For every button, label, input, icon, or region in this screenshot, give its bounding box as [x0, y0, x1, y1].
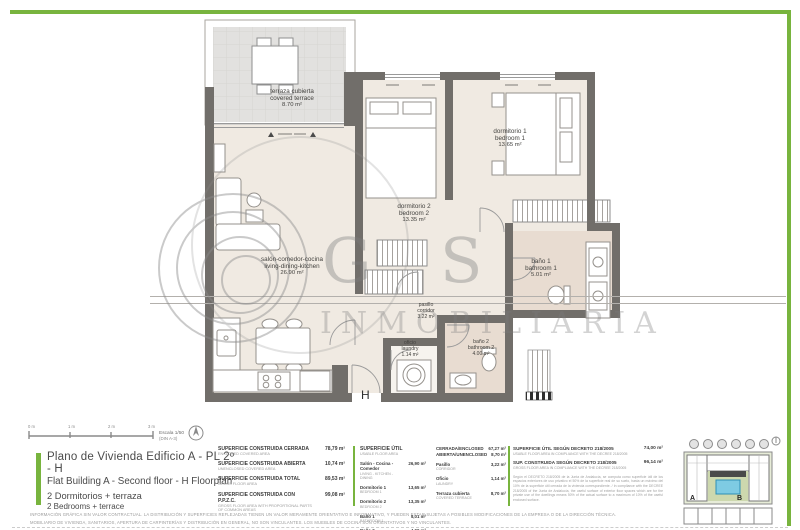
green-border-top [10, 10, 790, 14]
table-row: SUP. CONSTRUIDA SEGÚN DECRETO 218/2005GR… [513, 460, 663, 470]
room-label-bedroom1: dormitorio 1bedroom 113.65 m² [493, 128, 526, 149]
sheet-title-es: Plano de Vivienda Edificio A - PL 2º - H [47, 451, 236, 475]
table-divider [508, 446, 510, 506]
scale-tick-2: 2 m [108, 424, 115, 429]
table-row: PasilloCorridor 3,22 m² [436, 462, 506, 472]
scale-tick-0: 0 m [28, 424, 35, 429]
legal-line-1: INFORMACIÓN GRÁFICA SIN VALOR CONTRACTUA… [30, 511, 685, 519]
stair-hatch [528, 350, 550, 392]
table-row: SUPERFICIE CONSTRUIDA TOTALGROSS FLOOR A… [218, 476, 345, 487]
room-label-terrace: terraza cubiertacovered terrace8.70 m² [270, 88, 314, 109]
unit-letter: H [361, 388, 370, 402]
adjacent-building [684, 508, 772, 524]
table-built-areas: SUPERFICIE CONSTRUIDA CERRADAENCLOSED CO… [218, 446, 345, 518]
floorplan-sheet: G S INMOBILIARIA terraza cubiertacovered… [0, 0, 800, 530]
table-row: SUPERFICIE CONSTRUIDA CERRADAENCLOSED CO… [218, 446, 345, 457]
table-row: Dormitorio 2Bedroom 2 13,35 m² [360, 499, 426, 509]
scale-bar: 0 m 1 m 2 m 3 m Escala 1/50 (DIN A-3) [28, 422, 228, 451]
compass-icon [189, 426, 203, 440]
room-label-corridor: pasillocorridor3.22 m² [417, 303, 435, 321]
sheet-title-en: Flat Building A - Second floor - H Floor… [47, 476, 236, 487]
room-label-bath1: baño 1bathroom 15.01 m² [525, 258, 557, 279]
room-label-living: salón-comedor-cocinaliving-dining-kitche… [261, 256, 323, 277]
sheet-subtitle-en: 2 Bedrooms + terrace [47, 502, 236, 511]
pool [716, 480, 740, 494]
table-row: Terraza cubiertaCovered terrace 8,70 m² [436, 491, 506, 501]
table-row: SUPERFICIE ÚTIL SEGÚN DECRETO 218/2005US… [513, 446, 663, 456]
room-label-bath2: baño 2bathroom 24.00 m² [468, 340, 494, 358]
green-border-right [787, 10, 791, 526]
north-arrow-icon [772, 437, 780, 445]
table-header: SUPERFICIE ÚTILUSABLE FLOOR AREA [360, 446, 426, 456]
table-total-row: CERRADA/ENCLOSED67,27 m² [436, 446, 506, 451]
scale-tick-3: 3 m [148, 424, 155, 429]
washer-icon [397, 360, 431, 391]
table-divider [353, 446, 355, 506]
site-key-plan: A B [680, 434, 784, 530]
sheet-subtitle-es: 2 Dormitorios + terraza [47, 491, 236, 501]
table-row: Salón - Cocina - ComedorLiving - Kitchen… [360, 461, 426, 481]
building-a-label: A [690, 495, 695, 502]
legal-disclaimer: INFORMACIÓN GRÁFICA SIN VALOR CONTRACTUA… [30, 511, 685, 526]
table-decree-areas: SUPERFICIE ÚTIL SEGÚN DECRETO 218/2005US… [513, 446, 663, 502]
tv-unit-icon [214, 144, 225, 172]
table-row: SUPERFICIE CONSTRUIDA ABIERTAUNENCLOSED … [218, 461, 345, 472]
table-row: SUPERFICIE CONSTRUIDA CON P.P.Z.C.GROSS … [218, 492, 345, 513]
room-label-laundry: oficiolaundry1.14 m² [401, 341, 418, 359]
decree-note: Según el DECRETO 218/2005 de la Junta de… [513, 475, 663, 503]
building-b-label: B [737, 495, 742, 502]
title-accent-bar [36, 453, 41, 505]
threshold-stripe [526, 392, 552, 400]
title-block: Plano de Vivienda Edificio A - PL 2º - H… [36, 451, 236, 511]
room-label-bedroom2: dormitorio 2bedroom 213.35 m² [397, 203, 430, 224]
terrace [205, 20, 355, 125]
tree-icons [690, 440, 769, 449]
table-row: OficioLaundry 1,14 m² [436, 476, 506, 486]
table-row: Dormitorio 1Bedroom 1 13,65 m² [360, 485, 426, 495]
bottom-rule [12, 527, 788, 528]
legal-line-2: MOBILIARIO DE VIVIENDA, SANITARIOS, APER… [30, 519, 685, 527]
table-total-row: ABIERTA/UNENCLOSED8,70 m² [436, 452, 506, 457]
scale-din: (DIN A-3) [159, 436, 178, 441]
scale-tick-1: 1 m [68, 424, 75, 429]
bed2-icon [366, 98, 436, 198]
